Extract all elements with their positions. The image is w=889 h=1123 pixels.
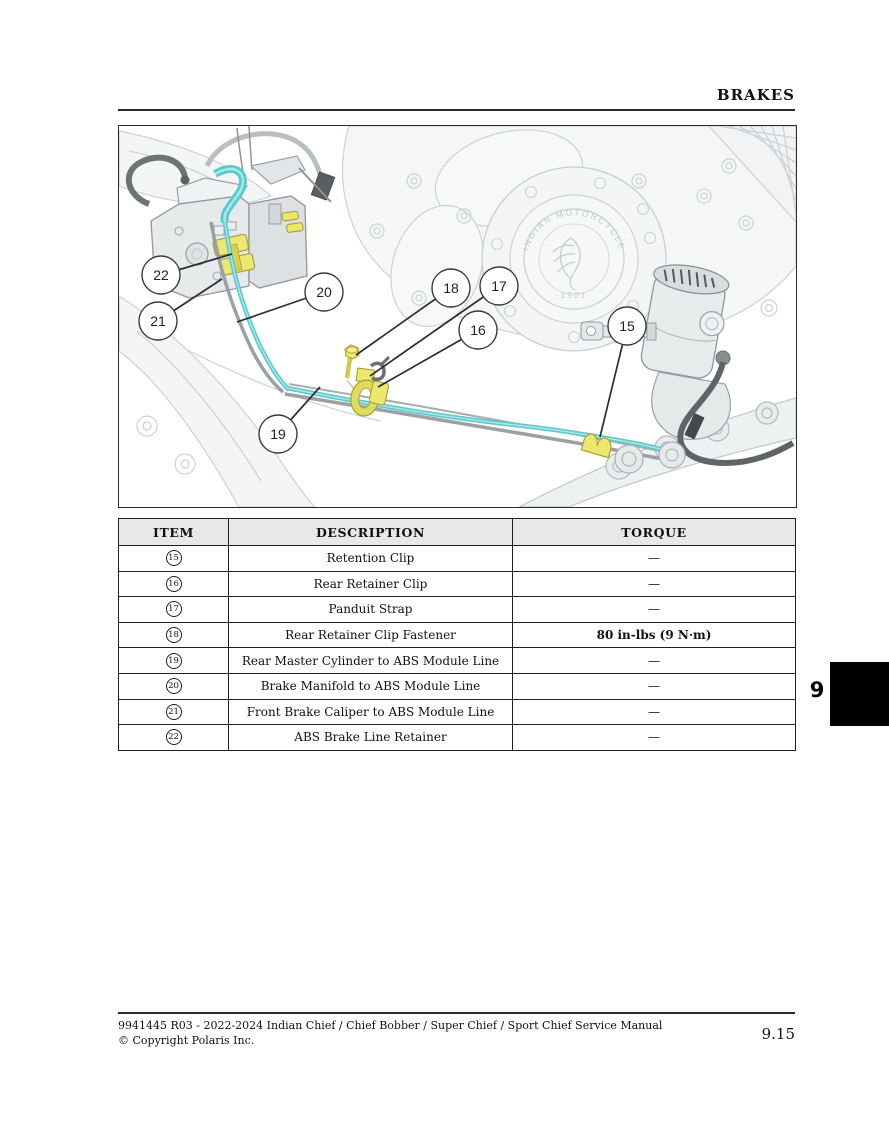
table-header-row: ITEM DESCRIPTION TORQUE	[119, 519, 796, 546]
footer-line-1: 9941445 R03 - 2022-2024 Indian Chief / C…	[118, 1019, 678, 1034]
circled-item-number: 22	[166, 729, 182, 745]
table-row: 16Rear Retainer Clip—	[119, 571, 796, 597]
item-cell: 15	[119, 546, 229, 572]
retainer-clip-fastener-bolt	[345, 345, 359, 389]
circled-item-number: 20	[166, 678, 182, 694]
item-cell: 20	[119, 673, 229, 699]
footer-text: 9941445 R03 - 2022-2024 Indian Chief / C…	[118, 1019, 678, 1048]
callout-number: 19	[270, 426, 286, 442]
description-cell: Rear Retainer Clip Fastener	[229, 622, 513, 648]
footer-line-2: © Copyright Polaris Inc.	[118, 1034, 678, 1049]
table-row: 20Brake Manifold to ABS Module Line—	[119, 673, 796, 699]
manual-page: BRAKES	[0, 0, 889, 1123]
table-row: 21Front Brake Caliper to ABS Module Line…	[119, 699, 796, 725]
item-cell: 16	[119, 571, 229, 597]
circled-item-number: 17	[166, 601, 182, 617]
footer-rule	[118, 1012, 795, 1014]
brake-line-routing-figure: INDIAN MOTORCYCLE ·1901·	[118, 125, 797, 508]
callout-number: 21	[150, 313, 166, 329]
item-cell: 19	[119, 648, 229, 674]
callout-number: 18	[443, 280, 459, 296]
callout-19: 19	[259, 387, 320, 453]
callout-number: 20	[316, 284, 332, 300]
circled-item-number: 18	[166, 627, 182, 643]
description-cell: Panduit Strap	[229, 597, 513, 623]
description-cell: Front Brake Caliper to ABS Module Line	[229, 699, 513, 725]
page-number: 9.15	[762, 1025, 795, 1043]
description-cell: Rear Master Cylinder to ABS Module Line	[229, 648, 513, 674]
torque-cell: —	[513, 725, 796, 751]
item-cell: 17	[119, 597, 229, 623]
callout-number: 17	[491, 278, 507, 294]
description-cell: ABS Brake Line Retainer	[229, 725, 513, 751]
callout-number: 22	[153, 267, 169, 283]
circled-item-number: 15	[166, 550, 182, 566]
item-cell: 21	[119, 699, 229, 725]
torque-cell: 80 in-lbs (9 N·m)	[513, 622, 796, 648]
torque-cell: —	[513, 546, 796, 572]
circled-item-number: 16	[166, 576, 182, 592]
item-cell: 18	[119, 622, 229, 648]
table-row: 22ABS Brake Line Retainer—	[119, 725, 796, 751]
col-header-item: ITEM	[119, 519, 229, 546]
parts-torque-table: ITEM DESCRIPTION TORQUE 15Retention Clip…	[118, 518, 796, 751]
table-row: 15Retention Clip—	[119, 546, 796, 572]
col-header-torque: TORQUE	[513, 519, 796, 546]
brake-diagram-svg: INDIAN MOTORCYCLE ·1901·	[119, 126, 796, 507]
page-header-title: BRAKES	[717, 86, 795, 104]
torque-cell: —	[513, 673, 796, 699]
chapter-number: 9	[806, 678, 828, 702]
torque-cell: —	[513, 597, 796, 623]
description-cell: Retention Clip	[229, 546, 513, 572]
callout-number: 16	[470, 322, 486, 338]
circled-item-number: 19	[166, 653, 182, 669]
svg-text:·1901·: ·1901·	[556, 290, 593, 300]
chapter-tab-block	[830, 662, 889, 726]
torque-cell: —	[513, 699, 796, 725]
description-cell: Brake Manifold to ABS Module Line	[229, 673, 513, 699]
table-row: 19Rear Master Cylinder to ABS Module Lin…	[119, 648, 796, 674]
torque-cell: —	[513, 648, 796, 674]
callout-number: 15	[619, 318, 635, 334]
table-row: 18Rear Retainer Clip Fastener80 in-lbs (…	[119, 622, 796, 648]
col-header-description: DESCRIPTION	[229, 519, 513, 546]
torque-cell: —	[513, 571, 796, 597]
circled-item-number: 21	[166, 704, 182, 720]
item-cell: 22	[119, 725, 229, 751]
table-row: 17Panduit Strap—	[119, 597, 796, 623]
header-rule	[118, 109, 795, 111]
description-cell: Rear Retainer Clip	[229, 571, 513, 597]
